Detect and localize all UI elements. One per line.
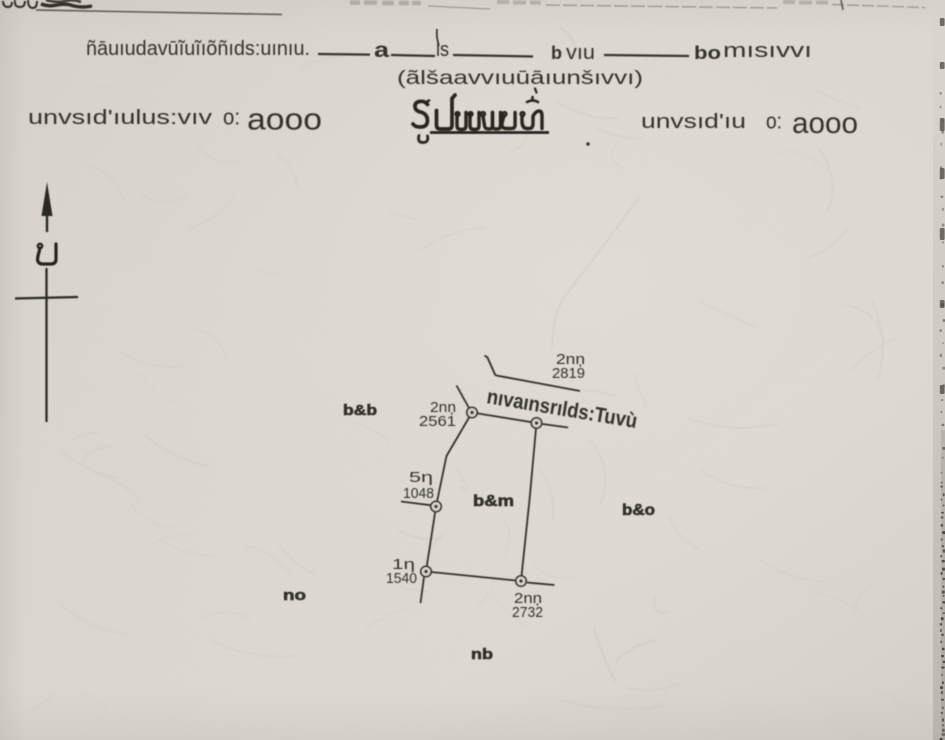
svg-text:b: b <box>551 43 562 63</box>
svg-text:o:: o: <box>766 109 782 134</box>
svg-text:(ãlšaavvıuūāıunšıvvı): (ãlšaavvıuūāıunšıvvı) <box>397 68 643 89</box>
svg-text:b&m: b&m <box>473 493 514 510</box>
svg-text:ñāuıudavūĩuĩıõñıds:uınıu.: ñāuıudavūĩuĩıõñıds:uınıu. <box>86 38 310 60</box>
svg-text:o:: o: <box>223 105 240 130</box>
svg-text:vıu: vıu <box>566 42 595 64</box>
svg-text:unvsıd'ıulus:vıv: unvsıd'ıulus:vıv <box>28 107 212 129</box>
svg-text:a: a <box>374 39 389 62</box>
svg-text:b&o: b&o <box>622 502 655 519</box>
svg-text:1540: 1540 <box>386 571 417 587</box>
svg-text:2732: 2732 <box>512 605 543 621</box>
svg-text:unvsıd'ıu: unvsıd'ıu <box>641 111 746 133</box>
svg-text:2561: 2561 <box>419 414 456 430</box>
svg-text:1048: 1048 <box>403 486 434 502</box>
svg-text:2819: 2819 <box>552 366 585 382</box>
svg-text:aooo: aooo <box>247 102 322 137</box>
svg-text:mısıvvı: mısıvvı <box>723 40 812 62</box>
svg-text:5η: 5η <box>409 470 433 486</box>
svg-text:aooo: aooo <box>792 107 858 140</box>
svg-text:b&b: b&b <box>343 403 377 419</box>
svg-text:bo: bo <box>694 43 721 63</box>
svg-text:nb: nb <box>471 646 493 663</box>
svg-text:no: no <box>283 587 306 604</box>
